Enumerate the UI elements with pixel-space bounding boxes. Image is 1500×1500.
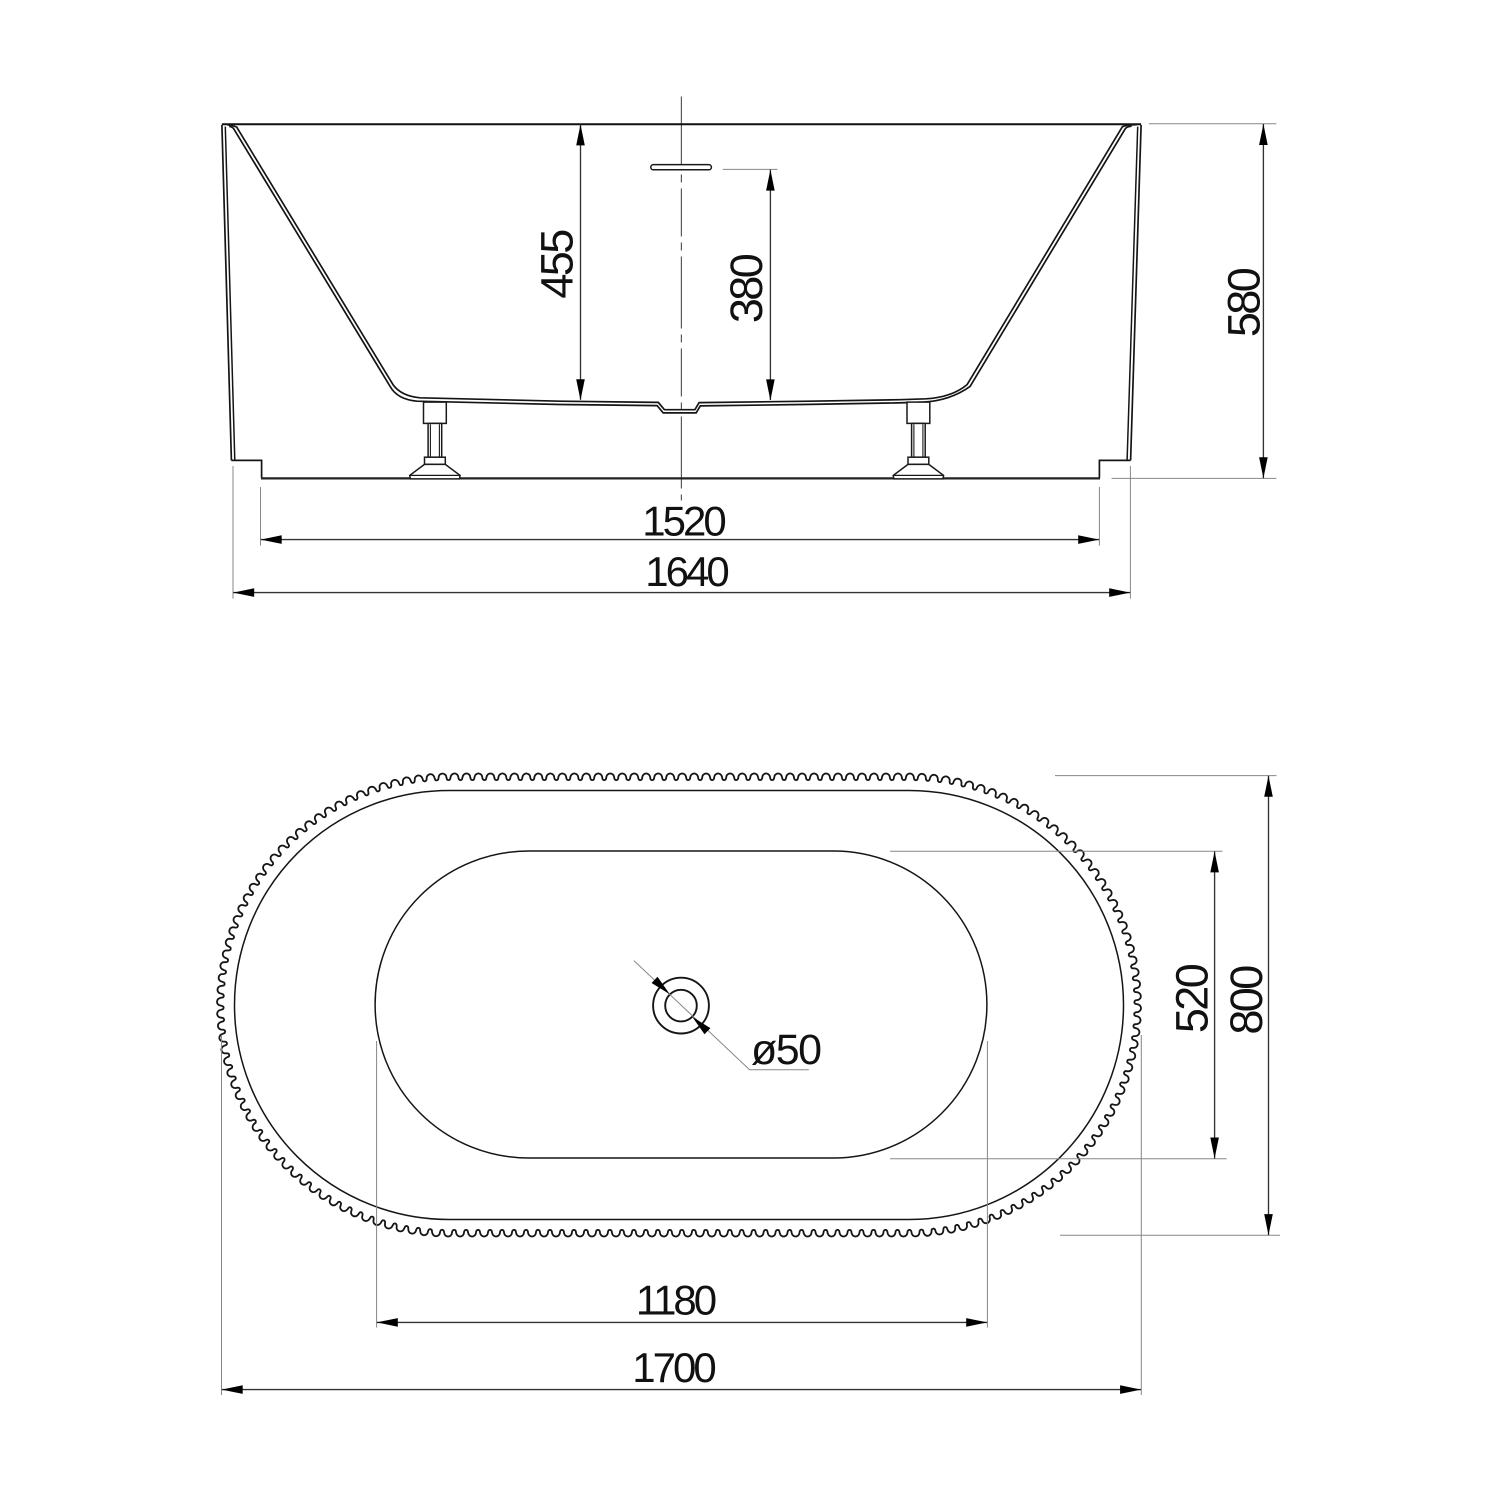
svg-text:ø50: ø50: [751, 1026, 821, 1074]
svg-text:455: 455: [532, 230, 583, 299]
svg-text:520: 520: [1167, 964, 1218, 1033]
svg-text:1700: 1700: [632, 1344, 715, 1391]
svg-text:1520: 1520: [642, 498, 725, 545]
svg-text:800: 800: [1221, 966, 1272, 1035]
svg-text:380: 380: [721, 254, 772, 323]
svg-text:1180: 1180: [636, 1277, 716, 1324]
svg-text:1640: 1640: [645, 548, 728, 595]
svg-text:580: 580: [1219, 268, 1270, 337]
